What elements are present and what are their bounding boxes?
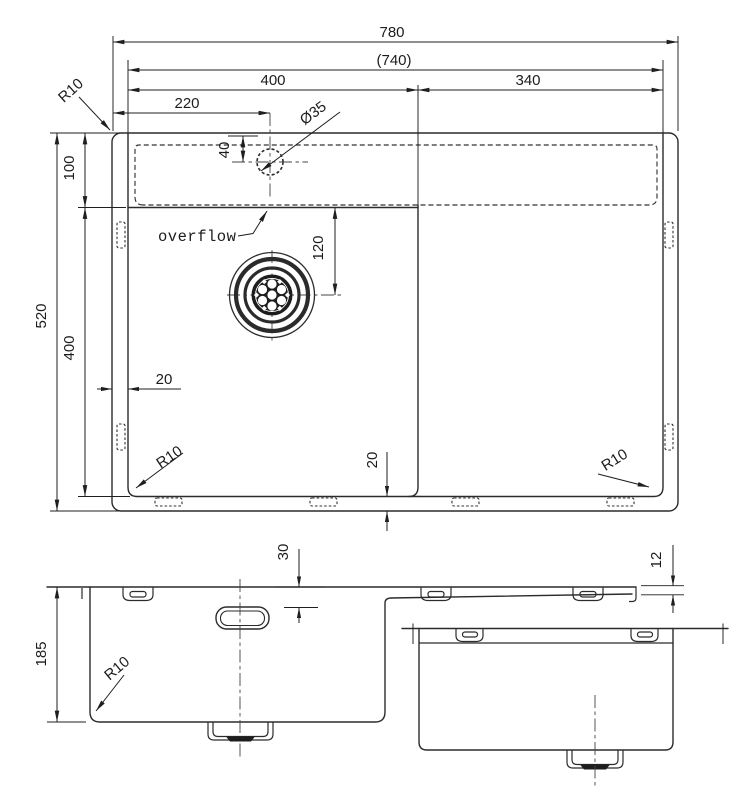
dim-bowl-depth-400: 400 xyxy=(61,208,130,497)
dim-label-740: (740) xyxy=(376,52,411,69)
dim-label-20-left: 20 xyxy=(156,371,173,388)
dim-inner-width-740: (740) xyxy=(128,52,663,70)
radius-label: R10 xyxy=(55,75,87,106)
right-bowl-outline xyxy=(418,133,663,497)
deck-hidden-edge xyxy=(135,145,657,205)
dim-label-400v: 400 xyxy=(61,335,78,360)
dim-label-400: 400 xyxy=(260,72,285,89)
mounting-clip xyxy=(123,588,153,601)
mounting-clip xyxy=(631,629,658,642)
dim-label-520: 520 xyxy=(33,303,50,328)
dim-overflow-offset-30: 30 xyxy=(275,544,325,623)
dim-label-12: 12 xyxy=(648,552,665,569)
dim-label-dia35: Ø35 xyxy=(297,98,330,129)
mounting-clip xyxy=(117,424,125,450)
mounting-clip xyxy=(456,629,483,642)
overflow-slot xyxy=(216,607,269,629)
radius-callout-top-left: R10 xyxy=(55,75,110,130)
dim-drain-offset-120: 120 xyxy=(310,208,335,296)
dim-rim-edge-12: 12 xyxy=(641,545,684,613)
dim-faucet-hole-dia: Ø35 xyxy=(261,98,340,171)
dim-edge-margin-20-bottom: 20 xyxy=(364,452,389,531)
dim-faucet-hole-offset-40: 40 xyxy=(216,136,258,162)
radius-label: R10 xyxy=(153,443,185,472)
mounting-clip xyxy=(310,498,337,506)
mounting-clip xyxy=(665,424,673,450)
drain-strainer-icon xyxy=(227,250,342,341)
radius-label: R10 xyxy=(598,446,630,475)
mounting-clip xyxy=(117,222,125,248)
dim-label-40: 40 xyxy=(216,142,233,159)
dim-label-340: 340 xyxy=(515,72,540,89)
mounting-clip xyxy=(665,222,673,248)
dim-faucet-offset-220: 220 xyxy=(113,95,270,113)
dim-right-bowl-340: 340 xyxy=(418,72,663,90)
dim-left-bowl-400: 400 xyxy=(128,72,418,90)
front-mounting-clips xyxy=(123,588,603,601)
dim-overall-width-780: 780 xyxy=(113,24,678,131)
overflow-annotation: overflow xyxy=(158,211,267,246)
dim-edge-margin-20-left: 20 xyxy=(97,371,181,391)
dim-label-780: 780 xyxy=(379,24,404,41)
radius-label: R10 xyxy=(101,653,133,684)
overflow-leader xyxy=(238,211,267,236)
mounting-clip xyxy=(155,498,182,506)
bowl-divider xyxy=(409,205,418,497)
radius-callout-bottom-right: R10 xyxy=(598,446,649,487)
right-bowl-section xyxy=(402,624,728,789)
mounting-clip xyxy=(452,498,479,506)
dim-label-30: 30 xyxy=(275,544,292,561)
mounting-clip xyxy=(421,588,451,601)
radius-callout-bottom-left: R10 xyxy=(136,443,186,488)
mounting-clip xyxy=(607,498,634,506)
radius-callout-front: R10 xyxy=(96,653,133,711)
dim-label-220: 220 xyxy=(174,95,199,112)
dim-deck-depth-100: 100 xyxy=(61,133,126,208)
dim-label-185: 185 xyxy=(33,641,50,666)
dim-bowl-height-185: 185 xyxy=(33,587,57,722)
left-drain xyxy=(208,722,273,742)
plan-view: 780 (740) 400 340 220 520 10 xyxy=(33,24,678,531)
dim-label-20-bottom: 20 xyxy=(364,452,381,469)
overflow-label: overflow xyxy=(158,228,237,246)
right-bowl-profile xyxy=(419,629,673,751)
sink-technical-drawing: 780 (740) 400 340 220 520 10 xyxy=(0,0,742,800)
dim-overall-depth-520: 520 xyxy=(33,133,120,511)
dim-label-100: 100 xyxy=(61,155,78,180)
left-bowl-profile xyxy=(90,587,632,722)
front-view: 185 30 12 R10 xyxy=(33,544,728,788)
sink-outer-outline xyxy=(112,133,678,511)
dim-label-120: 120 xyxy=(310,235,327,260)
